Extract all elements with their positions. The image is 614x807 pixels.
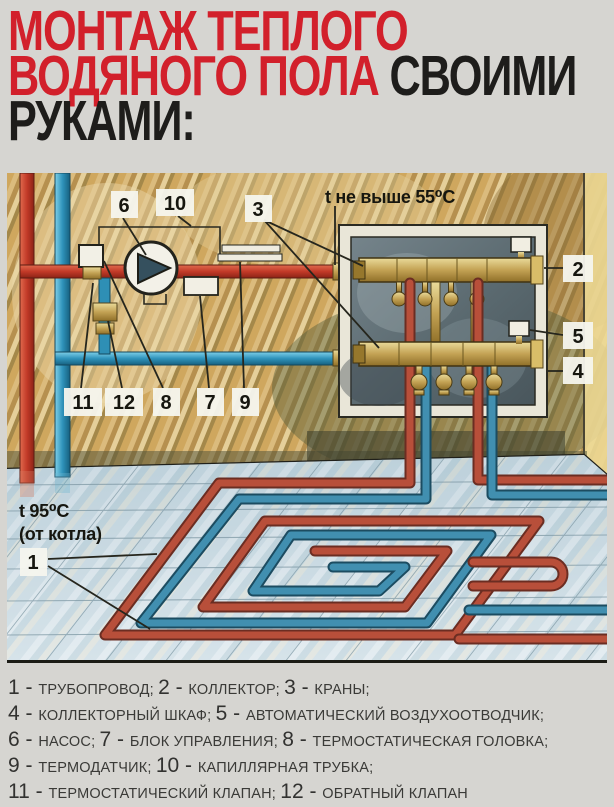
legend-number: 4 - bbox=[8, 702, 38, 725]
callout-1: 1 bbox=[27, 552, 38, 574]
thermostatic-head bbox=[79, 245, 103, 267]
legend: 1 - ТРУБОПРОВОД; 2 - КОЛЛЕКТОР; 3 - КРАН… bbox=[8, 676, 610, 806]
callout-3: 3 bbox=[252, 199, 263, 221]
supply-temp-sub: (от котла) bbox=[19, 524, 102, 544]
callout-4: 4 bbox=[572, 361, 584, 383]
legend-term: ТЕРМОСТАТИЧЕСКИЙ КЛАПАН; bbox=[48, 786, 280, 802]
legend-term: ТЕРМОДАТЧИК; bbox=[38, 760, 155, 776]
air-vent bbox=[509, 321, 529, 336]
callout-7: 7 bbox=[204, 392, 215, 414]
control-unit bbox=[184, 277, 218, 295]
legend-term: КАПИЛЛЯРНАЯ ТРУБКА; bbox=[198, 760, 374, 776]
installation-diagram: 6 10 3 2 5 4 11 12 8 7 9 1 t не выше 55⁰… bbox=[7, 173, 607, 663]
max-temp-label: t не выше 55⁰C bbox=[325, 187, 455, 207]
legend-term: НАСОС; bbox=[38, 734, 99, 750]
return-manifold bbox=[359, 342, 531, 366]
legend-number: 10 - bbox=[156, 754, 198, 777]
legend-term: КРАНЫ; bbox=[314, 682, 369, 698]
legend-number: 5 - bbox=[216, 702, 246, 725]
legend-number: 7 - bbox=[100, 728, 130, 751]
callout-11: 11 bbox=[72, 392, 93, 414]
legend-term: АВТОМАТИЧЕСКИЙ ВОЗДУХООТВОДЧИК; bbox=[246, 708, 544, 724]
legend-number: 3 - bbox=[284, 676, 314, 699]
return-riser-pipe bbox=[55, 173, 70, 477]
callout-10: 10 bbox=[164, 193, 186, 215]
legend-term: ОБРАТНЫЙ КЛАПАН bbox=[322, 786, 468, 802]
legend-line: 4 - КОЛЛЕКТОРНЫЙ ШКАФ; 5 - АВТОМАТИЧЕСКИ… bbox=[8, 702, 610, 728]
title-line3: РУКАМИ: bbox=[8, 89, 195, 153]
thermostatic-valve bbox=[83, 267, 101, 279]
legend-number: 12 - bbox=[280, 780, 322, 803]
legend-term: БЛОК УПРАВЛЕНИЯ; bbox=[130, 734, 282, 750]
legend-number: 8 - bbox=[282, 728, 312, 751]
title-line2-black: СВОИМИ bbox=[379, 44, 577, 108]
callout-12: 12 bbox=[113, 392, 135, 414]
legend-line: 1 - ТРУБОПРОВОД; 2 - КОЛЛЕКТОР; 3 - КРАН… bbox=[8, 676, 610, 702]
legend-number: 2 - bbox=[158, 676, 188, 699]
legend-term: ТРУБОПРОВОД; bbox=[38, 682, 158, 698]
figure-bottom-rule bbox=[7, 660, 607, 663]
legend-number: 11 - bbox=[8, 780, 48, 803]
callout-6: 6 bbox=[118, 195, 129, 217]
legend-number: 9 - bbox=[8, 754, 38, 777]
legend-number: 1 - bbox=[8, 676, 38, 699]
return-manifold-valve bbox=[353, 345, 365, 363]
supply-manifold bbox=[359, 258, 531, 282]
legend-term: КОЛЛЕКТОРНЫЙ ШКАФ; bbox=[38, 708, 215, 724]
legend-term: ТЕРМОСТАТИЧЕСКАЯ ГОЛОВКА; bbox=[313, 734, 549, 750]
check-valve bbox=[93, 303, 117, 321]
diagram-svg: 6 10 3 2 5 4 11 12 8 7 9 1 t не выше 55⁰… bbox=[7, 173, 607, 663]
callout-8: 8 bbox=[160, 392, 171, 414]
legend-term: КОЛЛЕКТОР; bbox=[188, 682, 284, 698]
temperature-sensor bbox=[222, 245, 280, 252]
legend-line: 6 - НАСОС; 7 - БЛОК УПРАВЛЕНИЯ; 8 - ТЕРМ… bbox=[8, 728, 610, 754]
legend-line: 11 - ТЕРМОСТАТИЧЕСКИЙ КЛАПАН; 12 - ОБРАТ… bbox=[8, 780, 610, 806]
legend-line: 9 - ТЕРМОДАТЧИК; 10 - КАПИЛЛЯРНАЯ ТРУБКА… bbox=[8, 754, 610, 780]
supply-riser-pipe bbox=[20, 173, 34, 483]
callout-5: 5 bbox=[572, 326, 583, 348]
supply-temp-label: t 95⁰C bbox=[19, 501, 69, 521]
air-vent-top bbox=[511, 237, 531, 252]
callout-2: 2 bbox=[572, 259, 583, 281]
legend-number: 6 - bbox=[8, 728, 38, 751]
poster: МОНТАЖ ТЕПЛОГОВОДЯНОГО ПОЛА СВОИМИРУКАМИ… bbox=[0, 0, 614, 807]
page-title: МОНТАЖ ТЕПЛОГОВОДЯНОГО ПОЛА СВОИМИРУКАМИ… bbox=[8, 9, 614, 144]
callout-9: 9 bbox=[239, 392, 250, 414]
